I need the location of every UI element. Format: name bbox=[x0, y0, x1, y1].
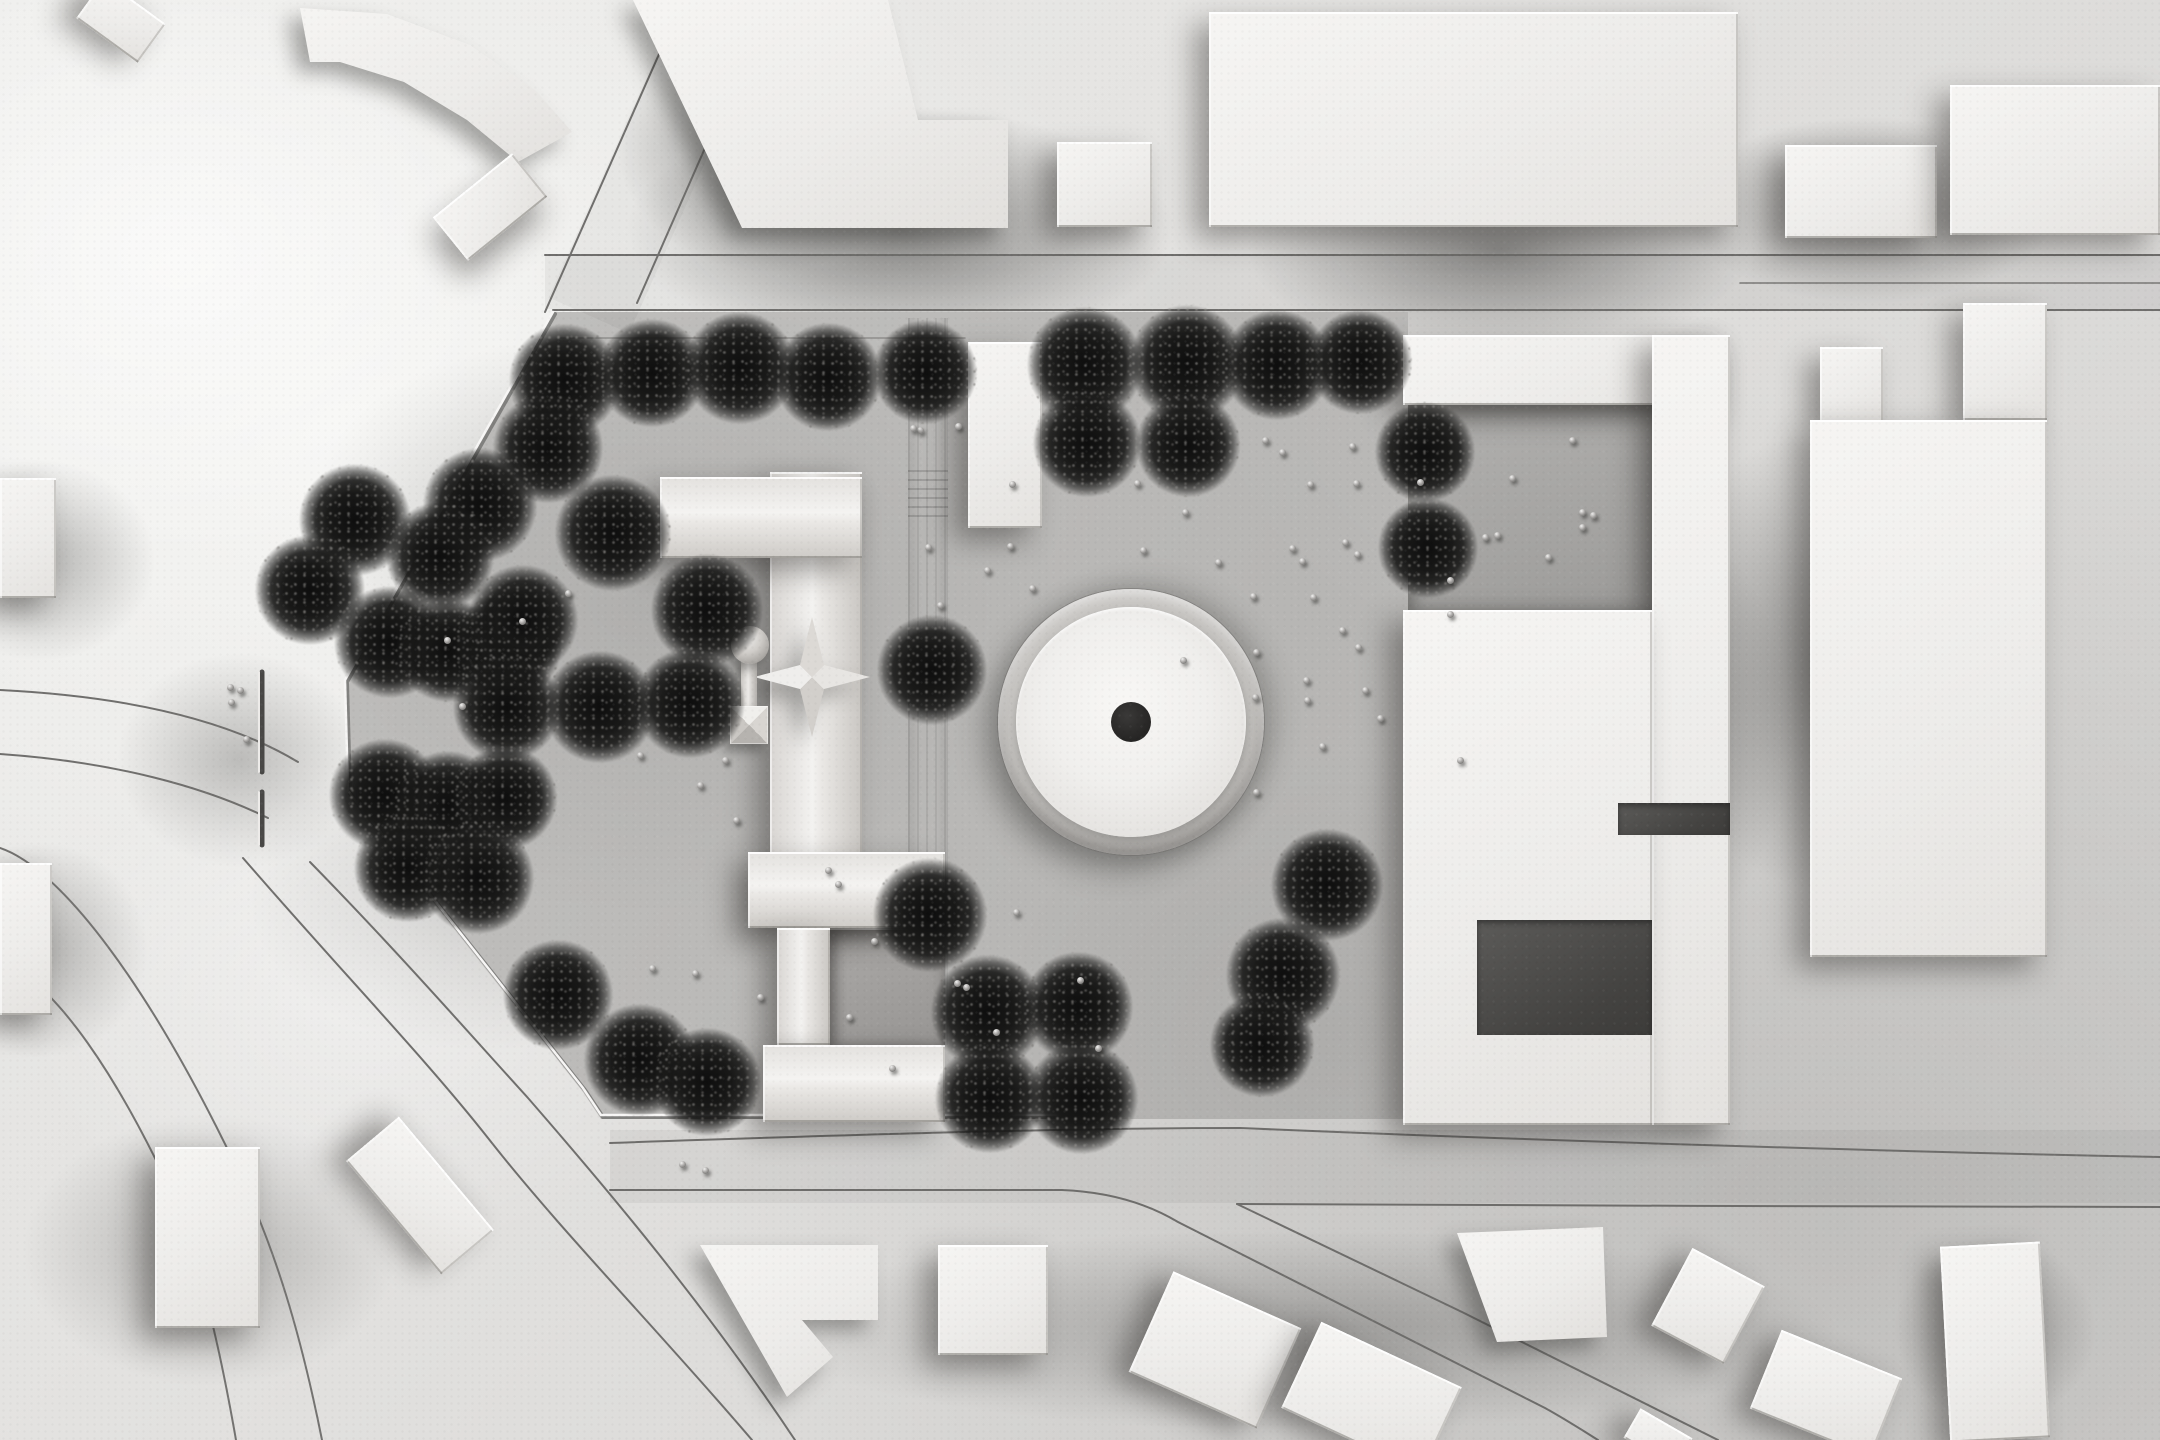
building bbox=[1785, 145, 1937, 238]
tree bbox=[873, 320, 977, 424]
building bbox=[155, 1147, 260, 1328]
person-figure bbox=[1579, 524, 1586, 531]
building bbox=[1281, 1322, 1462, 1440]
tower-annex bbox=[1820, 347, 1883, 422]
person-figure bbox=[649, 965, 656, 972]
person-figure bbox=[925, 544, 932, 551]
perimeter-block-east bbox=[1652, 335, 1730, 1125]
building bbox=[938, 1245, 1048, 1355]
arc-building-roof bbox=[292, 0, 582, 170]
l-building bbox=[630, 0, 1008, 228]
tree bbox=[651, 554, 763, 666]
tree bbox=[555, 475, 671, 591]
person-figure bbox=[679, 1161, 686, 1168]
person-figure bbox=[955, 423, 962, 430]
person-figure bbox=[1307, 481, 1314, 488]
tree bbox=[1210, 993, 1314, 1097]
person-figure bbox=[637, 752, 644, 759]
person-figure bbox=[228, 699, 235, 706]
person-figure bbox=[917, 427, 924, 434]
building bbox=[1950, 85, 2160, 235]
site-plan-canvas bbox=[0, 0, 2160, 1440]
person-figure bbox=[1457, 757, 1464, 764]
l-building-roof bbox=[630, 0, 1008, 228]
road-surface bbox=[545, 256, 2160, 309]
cloister-slab bbox=[763, 1045, 945, 1122]
tree bbox=[873, 858, 987, 972]
person-figure bbox=[1134, 480, 1141, 487]
tree bbox=[877, 615, 987, 725]
person-figure bbox=[1253, 649, 1260, 656]
wedge-building-roof bbox=[1457, 1227, 1607, 1342]
person-figure bbox=[1447, 611, 1454, 618]
building bbox=[1651, 1248, 1765, 1364]
person-figure bbox=[1579, 509, 1586, 516]
person-figure bbox=[1180, 657, 1187, 664]
tree bbox=[422, 822, 534, 934]
tree bbox=[1375, 402, 1475, 502]
person-figure bbox=[757, 994, 764, 1001]
building bbox=[1624, 1408, 1693, 1440]
person-figure bbox=[1355, 644, 1362, 651]
person-figure bbox=[1349, 443, 1356, 450]
tower-slab bbox=[1810, 420, 2047, 957]
person-figure bbox=[1013, 909, 1020, 916]
person-figure bbox=[1140, 547, 1147, 554]
person-figure bbox=[1095, 1045, 1102, 1052]
person-figure bbox=[871, 938, 878, 945]
building bbox=[1057, 142, 1152, 227]
perimeter-block-south bbox=[1403, 610, 1652, 1125]
tree bbox=[1033, 389, 1141, 497]
person-figure bbox=[993, 1029, 1000, 1036]
person-figure bbox=[692, 970, 699, 977]
building bbox=[346, 1117, 494, 1275]
person-figure bbox=[889, 1065, 896, 1072]
person-figure bbox=[1009, 481, 1016, 488]
person-figure bbox=[1545, 554, 1552, 561]
arc-building bbox=[292, 0, 582, 170]
person-figure bbox=[1029, 585, 1036, 592]
person-figure bbox=[910, 425, 917, 432]
small-building bbox=[76, 0, 166, 63]
person-figure bbox=[1417, 479, 1424, 486]
person-figure bbox=[1310, 594, 1317, 601]
person-figure bbox=[963, 984, 970, 991]
person-figure bbox=[1182, 509, 1189, 516]
person-figure bbox=[1077, 977, 1084, 984]
building bbox=[1750, 1330, 1902, 1440]
person-figure bbox=[1252, 694, 1259, 701]
wedge-building bbox=[1457, 1227, 1607, 1342]
person-figure bbox=[1482, 534, 1489, 541]
person-figure bbox=[227, 684, 234, 691]
road-line bbox=[0, 754, 268, 818]
road-line bbox=[0, 690, 298, 762]
person-figure bbox=[1377, 715, 1384, 722]
person-figure bbox=[1262, 437, 1269, 444]
person-figure bbox=[1304, 697, 1311, 704]
person-figure bbox=[722, 757, 729, 764]
sunken-court bbox=[1477, 920, 1652, 1035]
person-figure bbox=[1447, 577, 1454, 584]
fountain-center-drain bbox=[1111, 702, 1151, 742]
person-figure bbox=[697, 782, 704, 789]
road-line bbox=[1237, 1204, 2160, 1207]
arrow-building bbox=[685, 1238, 885, 1400]
person-figure bbox=[1319, 743, 1326, 750]
person-figure bbox=[1339, 627, 1346, 634]
person-figure bbox=[1299, 558, 1306, 565]
person-figure bbox=[702, 1167, 709, 1174]
cloister-wall bbox=[777, 928, 830, 1045]
tree bbox=[1378, 498, 1478, 598]
building bbox=[1129, 1271, 1302, 1428]
person-figure bbox=[1250, 593, 1257, 600]
person-figure bbox=[1354, 551, 1361, 558]
person-figure bbox=[1303, 677, 1310, 684]
person-figure bbox=[459, 703, 466, 710]
passage-slot bbox=[1618, 803, 1730, 835]
person-figure bbox=[243, 736, 250, 743]
tower-top bbox=[1963, 303, 2047, 420]
person-figure bbox=[1342, 539, 1349, 546]
person-figure bbox=[1353, 480, 1360, 487]
road-line bbox=[610, 1128, 2160, 1157]
tree bbox=[1026, 1042, 1138, 1154]
building bbox=[1940, 1242, 2050, 1440]
tree bbox=[653, 1028, 761, 1136]
person-figure bbox=[835, 881, 842, 888]
person-figure bbox=[519, 618, 526, 625]
person-figure bbox=[1362, 687, 1369, 694]
person-figure bbox=[1494, 532, 1501, 539]
person-figure bbox=[1007, 543, 1014, 550]
edge-building bbox=[0, 863, 52, 1015]
tree bbox=[635, 648, 745, 758]
person-figure bbox=[937, 602, 944, 609]
tree bbox=[774, 323, 882, 431]
person-figure bbox=[825, 867, 832, 874]
person-figure bbox=[237, 687, 244, 694]
person-figure bbox=[846, 1014, 853, 1021]
person-figure bbox=[1279, 449, 1286, 456]
person-figure bbox=[984, 567, 991, 574]
arrow-building-roof bbox=[685, 1238, 885, 1400]
tree bbox=[1136, 393, 1240, 497]
person-figure bbox=[1590, 512, 1597, 519]
person-figure bbox=[1215, 559, 1222, 566]
large-slab-building bbox=[1209, 12, 1738, 227]
tree bbox=[1308, 310, 1412, 414]
person-figure bbox=[444, 637, 451, 644]
person-figure bbox=[1253, 789, 1260, 796]
person-figure bbox=[1509, 475, 1516, 482]
edge-building bbox=[0, 478, 56, 598]
person-figure bbox=[954, 980, 961, 987]
park-path-steps bbox=[908, 470, 948, 520]
person-figure bbox=[733, 817, 740, 824]
church-west-wing bbox=[660, 477, 862, 558]
person-figure bbox=[565, 590, 572, 597]
person-figure bbox=[1289, 545, 1296, 552]
person-figure bbox=[1569, 437, 1576, 444]
road-surface bbox=[610, 1130, 2160, 1203]
